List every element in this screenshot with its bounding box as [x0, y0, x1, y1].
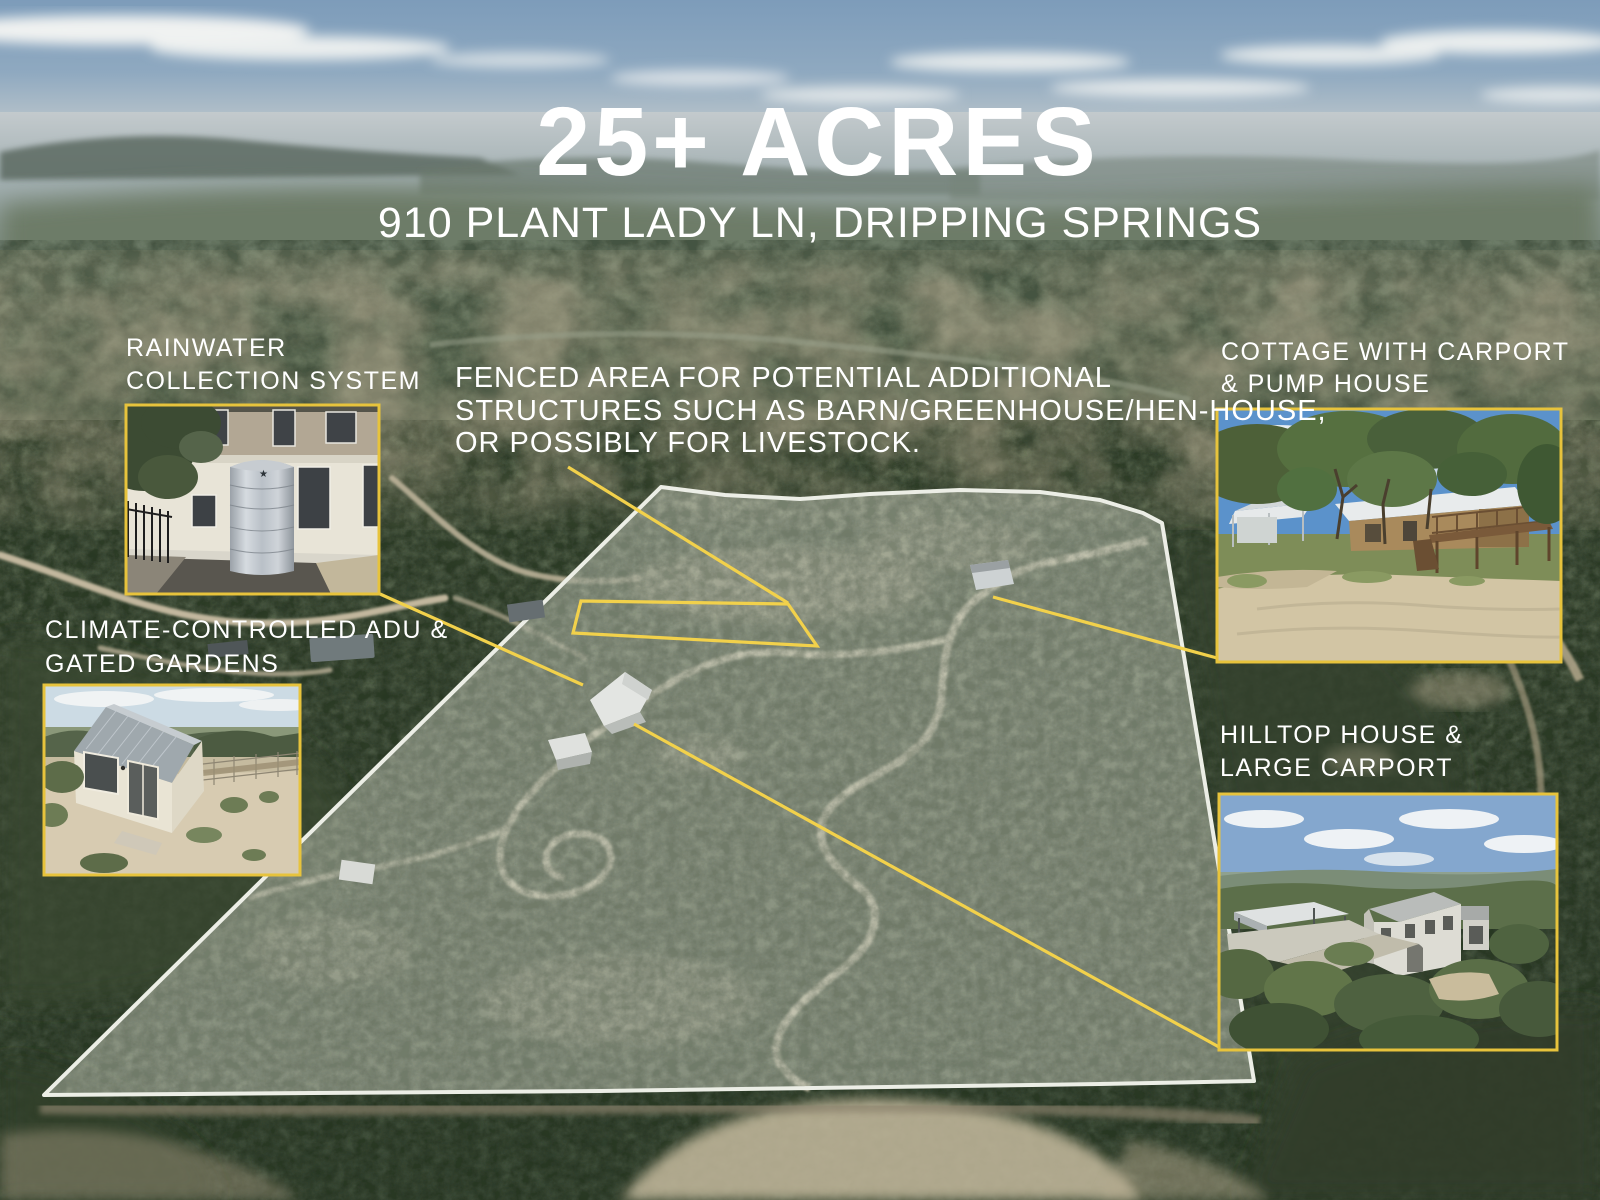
svg-text:★: ★: [259, 469, 268, 480]
